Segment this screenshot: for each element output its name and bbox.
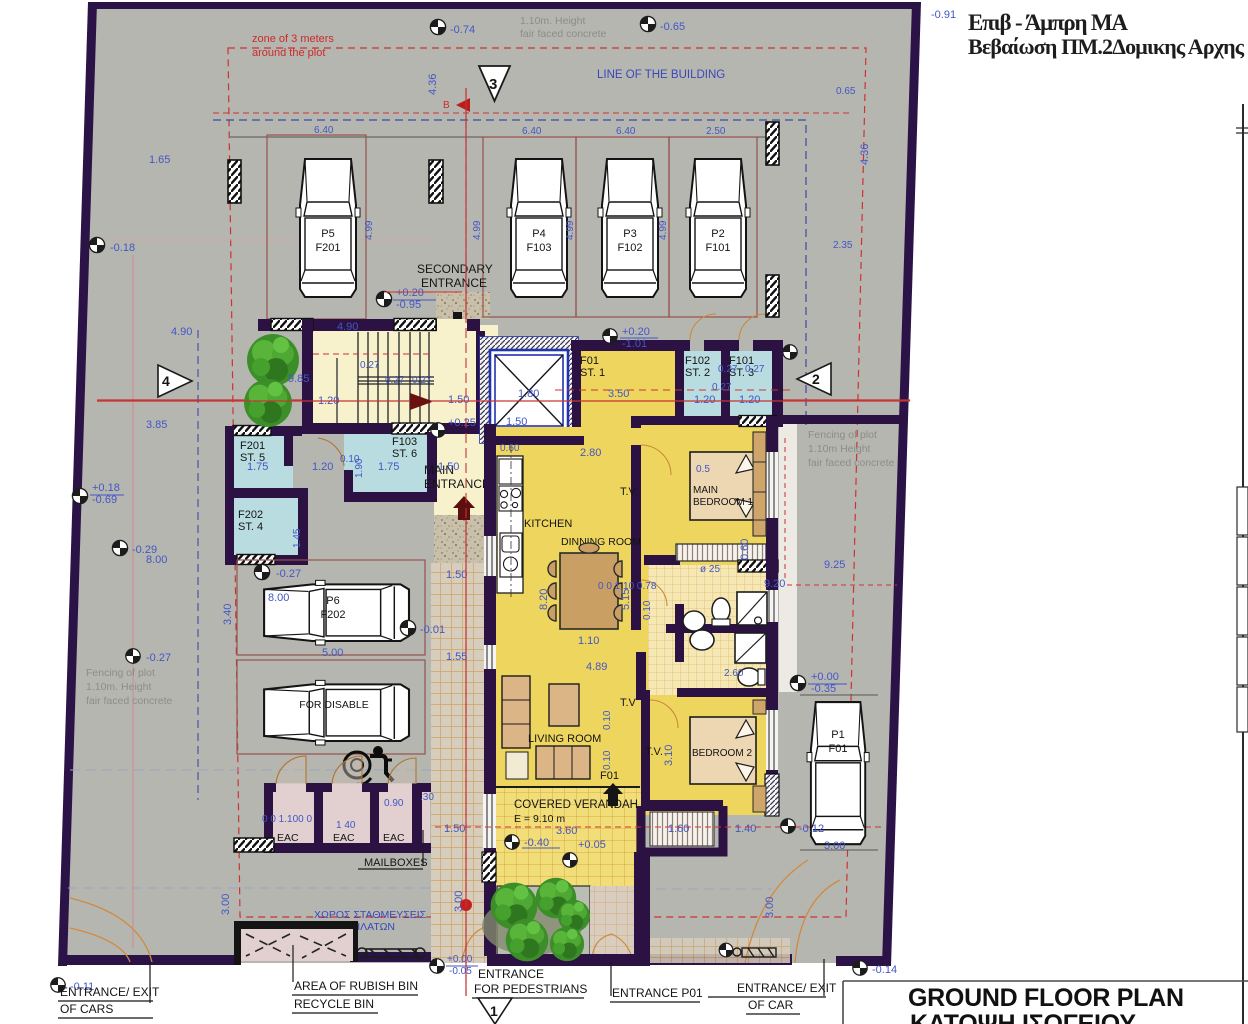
svg-text:OF CARS: OF CARS (60, 1002, 113, 1016)
svg-text:P1: P1 (831, 729, 844, 741)
svg-text:-0.69: -0.69 (92, 494, 117, 506)
svg-text:-0.12: -0.12 (799, 823, 824, 835)
svg-text:4.99: 4.99 (364, 220, 375, 240)
svg-text:+0.25: +0.25 (448, 417, 476, 429)
svg-text:2: 2 (812, 371, 820, 387)
svg-text:-0.35: -0.35 (811, 683, 836, 695)
svg-text:8.20: 8.20 (538, 589, 550, 610)
svg-text:4: 4 (162, 373, 170, 389)
svg-text:1.90: 1.90 (354, 458, 365, 478)
svg-text:T.V: T.V (620, 697, 637, 709)
svg-text:F01: F01 (600, 770, 619, 782)
svg-text:1.10: 1.10 (578, 635, 599, 647)
svg-text:Βεβαίωση ΠΜ.2Δομικης Αρχης: Βεβαίωση ΠΜ.2Δομικης Αρχης (968, 34, 1245, 59)
svg-text:1.10m Height: 1.10m Height (808, 443, 871, 455)
svg-text:T.V.: T.V. (620, 486, 638, 498)
svg-text:ENTRANCE/ EXIT: ENTRANCE/ EXIT (737, 981, 837, 995)
svg-text:6.40: 6.40 (522, 126, 542, 137)
svg-text:1.20: 1.20 (694, 394, 715, 406)
svg-text:F101: F101 (705, 242, 730, 254)
svg-text:3.10: 3.10 (663, 745, 675, 766)
svg-text:P6: P6 (326, 595, 339, 607)
svg-text:ST. 2: ST. 2 (685, 367, 710, 379)
svg-text:F103: F103 (392, 436, 417, 448)
svg-text:DINNING ROOM: DINNING ROOM (561, 536, 641, 548)
svg-text:4.99: 4.99 (658, 220, 669, 240)
svg-text:F102: F102 (685, 355, 710, 367)
svg-text:1.75: 1.75 (247, 461, 268, 473)
svg-text:6.40: 6.40 (616, 126, 636, 137)
svg-text:F103: F103 (526, 242, 551, 254)
svg-text:F202: F202 (320, 609, 345, 621)
svg-text:4.90: 4.90 (337, 321, 358, 333)
svg-text:1.55: 1.55 (446, 651, 467, 663)
svg-text:OF CAR: OF CAR (748, 998, 794, 1012)
svg-text:EAC: EAC (333, 832, 355, 844)
svg-text:T.V.: T.V. (645, 746, 663, 758)
svg-text:2.50: 2.50 (706, 126, 726, 137)
svg-text:Επιβ - Άμπρη ΜΑ: Επιβ - Άμπρη ΜΑ (968, 10, 1128, 35)
svg-text:4.36: 4.36 (427, 74, 439, 95)
svg-text:ENTRANCE: ENTRANCE (424, 477, 490, 491)
svg-text:EAC: EAC (383, 832, 405, 844)
svg-text:-0.65: -0.65 (660, 21, 685, 33)
svg-text:0.27: 0.27 (385, 375, 405, 386)
svg-text:-0.18: -0.18 (110, 242, 135, 254)
svg-text:+0.05: +0.05 (578, 839, 606, 851)
svg-text:GROUND FLOOR PLAN: GROUND FLOOR PLAN (908, 984, 1184, 1012)
svg-text:3.50: 3.50 (608, 388, 629, 400)
svg-text:0.10: 0.10 (602, 750, 613, 770)
svg-text:fair faced concrete: fair faced concrete (520, 28, 607, 40)
svg-text:-1.01: -1.01 (622, 338, 647, 350)
svg-text:1.75: 1.75 (378, 461, 399, 473)
svg-text:0.60: 0.60 (739, 539, 751, 560)
svg-text:3.00: 3.00 (824, 840, 845, 852)
svg-text:-0.40: -0.40 (524, 837, 549, 849)
svg-text:0.27: 0.27 (745, 364, 765, 375)
svg-text:1.50: 1.50 (506, 416, 527, 428)
svg-text:5.15: 5.15 (620, 589, 632, 610)
svg-text:4.90: 4.90 (171, 326, 192, 338)
svg-text:4.99: 4.99 (565, 220, 576, 240)
svg-text:P3: P3 (623, 228, 636, 240)
svg-text:9.20: 9.20 (764, 578, 785, 590)
svg-text:P2: P2 (711, 228, 724, 240)
svg-text:2.80: 2.80 (580, 447, 601, 459)
svg-text:1.45: 1.45 (292, 528, 303, 548)
svg-text:0.27: 0.27 (360, 360, 380, 371)
svg-text:zone of 3 meters: zone of 3 meters (252, 33, 334, 45)
svg-text:BEDROOM 2: BEDROOM 2 (692, 748, 752, 759)
svg-text:fair faced concrete: fair faced concrete (86, 695, 173, 707)
svg-text:F01: F01 (580, 355, 599, 367)
svg-text:Fencing of plot: Fencing of plot (808, 429, 877, 441)
svg-text:P4: P4 (532, 228, 545, 240)
svg-text:-0.29: -0.29 (132, 544, 157, 556)
svg-text:-0.01: -0.01 (420, 624, 445, 636)
svg-text:LINE OF THE BUILDING: LINE OF THE BUILDING (597, 69, 725, 81)
svg-text:F202: F202 (238, 509, 263, 521)
svg-text:ST. 1: ST. 1 (580, 367, 605, 379)
svg-text:1.10m. Height: 1.10m. Height (86, 681, 151, 693)
svg-text:ENTRANCE/ EXIT: ENTRANCE/ EXIT (60, 985, 160, 999)
svg-text:Fencing of plot: Fencing of plot (86, 667, 155, 679)
svg-text:MAILBOXES: MAILBOXES (364, 857, 428, 869)
svg-text:3.00: 3.00 (220, 894, 232, 915)
svg-text:8.00: 8.00 (268, 592, 289, 604)
svg-text:FOR PEDESTRIANS: FOR PEDESTRIANS (474, 982, 587, 996)
svg-text:P5: P5 (321, 228, 334, 240)
svg-text:6.40: 6.40 (314, 125, 334, 136)
svg-text:RECYCLE BIN: RECYCLE BIN (294, 997, 374, 1011)
svg-text:2.60: 2.60 (724, 668, 744, 679)
svg-text:fair faced concrete: fair faced concrete (808, 457, 895, 469)
svg-text:+0.18: +0.18 (92, 482, 120, 494)
svg-text:3.00: 3.00 (453, 891, 465, 912)
svg-text:1.60: 1.60 (668, 823, 689, 835)
svg-text:0.10: 0.10 (642, 600, 653, 620)
svg-text:0.27: 0.27 (718, 364, 738, 375)
svg-text:1.20: 1.20 (739, 394, 760, 406)
svg-text:ENTRANCE: ENTRANCE (478, 967, 544, 981)
svg-text:0.65: 0.65 (836, 86, 856, 97)
svg-text:EAC: EAC (277, 832, 299, 844)
svg-text:1.10m. Height: 1.10m. Height (520, 15, 585, 27)
svg-text:2.35: 2.35 (833, 240, 853, 251)
svg-text:4.36: 4.36 (859, 144, 871, 165)
svg-text:-0.95: -0.95 (396, 299, 421, 311)
svg-text:ENTRANCE P01: ENTRANCE P01 (612, 986, 703, 1000)
svg-text:0.10: 0.10 (602, 710, 613, 730)
svg-text:ENTRANCE: ENTRANCE (421, 276, 487, 290)
svg-text:-0.27: -0.27 (146, 652, 171, 664)
svg-text:1.20: 1.20 (312, 461, 333, 473)
svg-text:3.00: 3.00 (764, 897, 776, 918)
svg-text:4.89: 4.89 (586, 661, 607, 673)
svg-text:around the plot: around the plot (252, 47, 325, 59)
svg-text:9.85: 9.85 (288, 373, 309, 385)
svg-text:ø 25: ø 25 (700, 564, 720, 575)
svg-text:COVERED VERANDAH: COVERED VERANDAH (514, 799, 638, 811)
svg-text:F102: F102 (617, 242, 642, 254)
svg-text:KITCHEN: KITCHEN (524, 518, 572, 530)
svg-text:-0.05: -0.05 (449, 966, 472, 977)
svg-text:ST. 4: ST. 4 (238, 521, 263, 533)
svg-text:1.50: 1.50 (444, 823, 465, 835)
svg-text:.30: .30 (420, 792, 434, 803)
svg-text:-0.27: -0.27 (276, 568, 301, 580)
svg-text:-0.91: -0.91 (931, 9, 956, 21)
svg-text:+0.00: +0.00 (447, 954, 473, 965)
svg-text:0 0 1.100 0: 0 0 1.100 0 (262, 814, 312, 825)
svg-text:1.50: 1.50 (438, 461, 459, 473)
svg-text:9.25: 9.25 (824, 559, 845, 571)
svg-text:3.40: 3.40 (222, 604, 234, 625)
svg-text:F201: F201 (240, 440, 265, 452)
svg-text:MAIN: MAIN (693, 485, 718, 496)
svg-text:ST. 6: ST. 6 (392, 448, 417, 460)
svg-text:ΚΑΤΟΨΗ ΙΣΟΓΕΙΟΥ: ΚΑΤΟΨΗ ΙΣΟΓΕΙΟΥ (910, 1010, 1136, 1024)
svg-text:0.27: 0.27 (712, 382, 732, 393)
svg-text:-0.14: -0.14 (872, 964, 897, 976)
svg-text:3.85: 3.85 (146, 419, 167, 431)
svg-text:+0.20: +0.20 (622, 326, 650, 338)
svg-text:5.00: 5.00 (322, 647, 343, 659)
svg-text:1.65: 1.65 (149, 154, 170, 166)
svg-text:0.5: 0.5 (696, 464, 710, 475)
svg-text:F01: F01 (829, 743, 848, 755)
svg-text:+0.20: +0.20 (396, 287, 424, 299)
svg-text:1.40: 1.40 (735, 823, 756, 835)
svg-text:FOR DISABLE: FOR DISABLE (299, 699, 368, 711)
svg-text:+0.00: +0.00 (811, 671, 839, 683)
svg-text:1.80: 1.80 (518, 388, 539, 400)
svg-text:0.27: 0.27 (412, 375, 432, 386)
svg-text:3: 3 (489, 76, 497, 93)
svg-text:B: B (443, 100, 450, 111)
svg-text:1: 1 (490, 1003, 498, 1019)
svg-text:SECONDARY: SECONDARY (417, 262, 493, 276)
svg-text:LIVING ROOM: LIVING ROOM (528, 733, 601, 745)
svg-text:AREA OF RUBISH BIN: AREA OF RUBISH BIN (294, 979, 418, 993)
svg-text:-0.74: -0.74 (450, 24, 475, 36)
svg-text:E = 9.10 m: E = 9.10 m (514, 813, 565, 825)
svg-text:ΧΩΡΟΣ ΣΤΑΘΜΕΥΣΕΙΣ: ΧΩΡΟΣ ΣΤΑΘΜΕΥΣΕΙΣ (314, 909, 427, 921)
svg-text:4.99: 4.99 (472, 220, 483, 240)
svg-text:0.60: 0.60 (500, 443, 520, 454)
svg-text:F201: F201 (315, 242, 340, 254)
svg-text:1 40: 1 40 (336, 820, 356, 831)
svg-text:0.90: 0.90 (384, 798, 404, 809)
svg-text:BEDROOM 1: BEDROOM 1 (693, 497, 753, 508)
svg-text:1.50: 1.50 (446, 569, 467, 581)
